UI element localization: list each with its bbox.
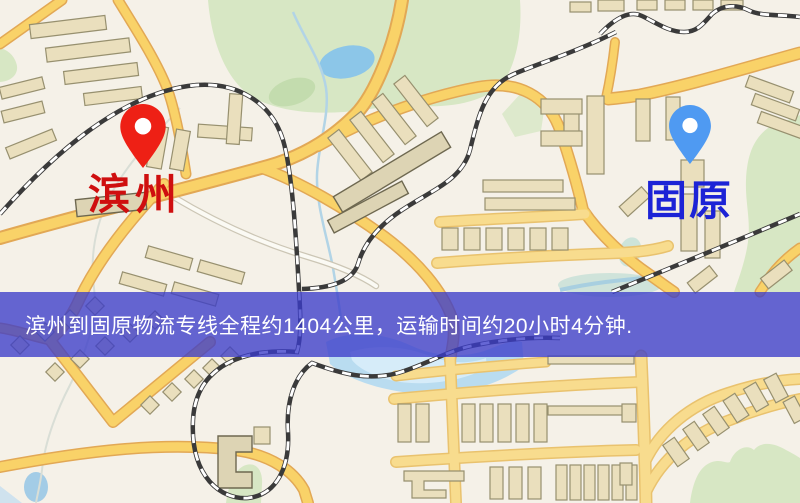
origin-pin-shape — [120, 104, 165, 168]
map-container: 滨州 固原 滨州到固原物流专线全程约1404公里，运输时间约20小时4分钟. — [0, 0, 800, 503]
map-canvas — [0, 0, 800, 503]
destination-marker-icon — [669, 105, 711, 164]
route-banner-text: 滨州到固原物流专线全程约1404公里，运输时间约20小时4分钟. — [25, 310, 633, 340]
origin-pin-hole — [135, 118, 152, 135]
origin-label: 滨州 — [88, 174, 182, 216]
destination-pin-shape — [669, 105, 711, 164]
destination-pin-hole — [682, 118, 697, 133]
route-banner: 滨州到固原物流专线全程约1404公里，运输时间约20小时4分钟. — [0, 292, 800, 357]
destination-label: 固原 — [645, 180, 733, 222]
origin-marker-icon — [120, 104, 166, 168]
